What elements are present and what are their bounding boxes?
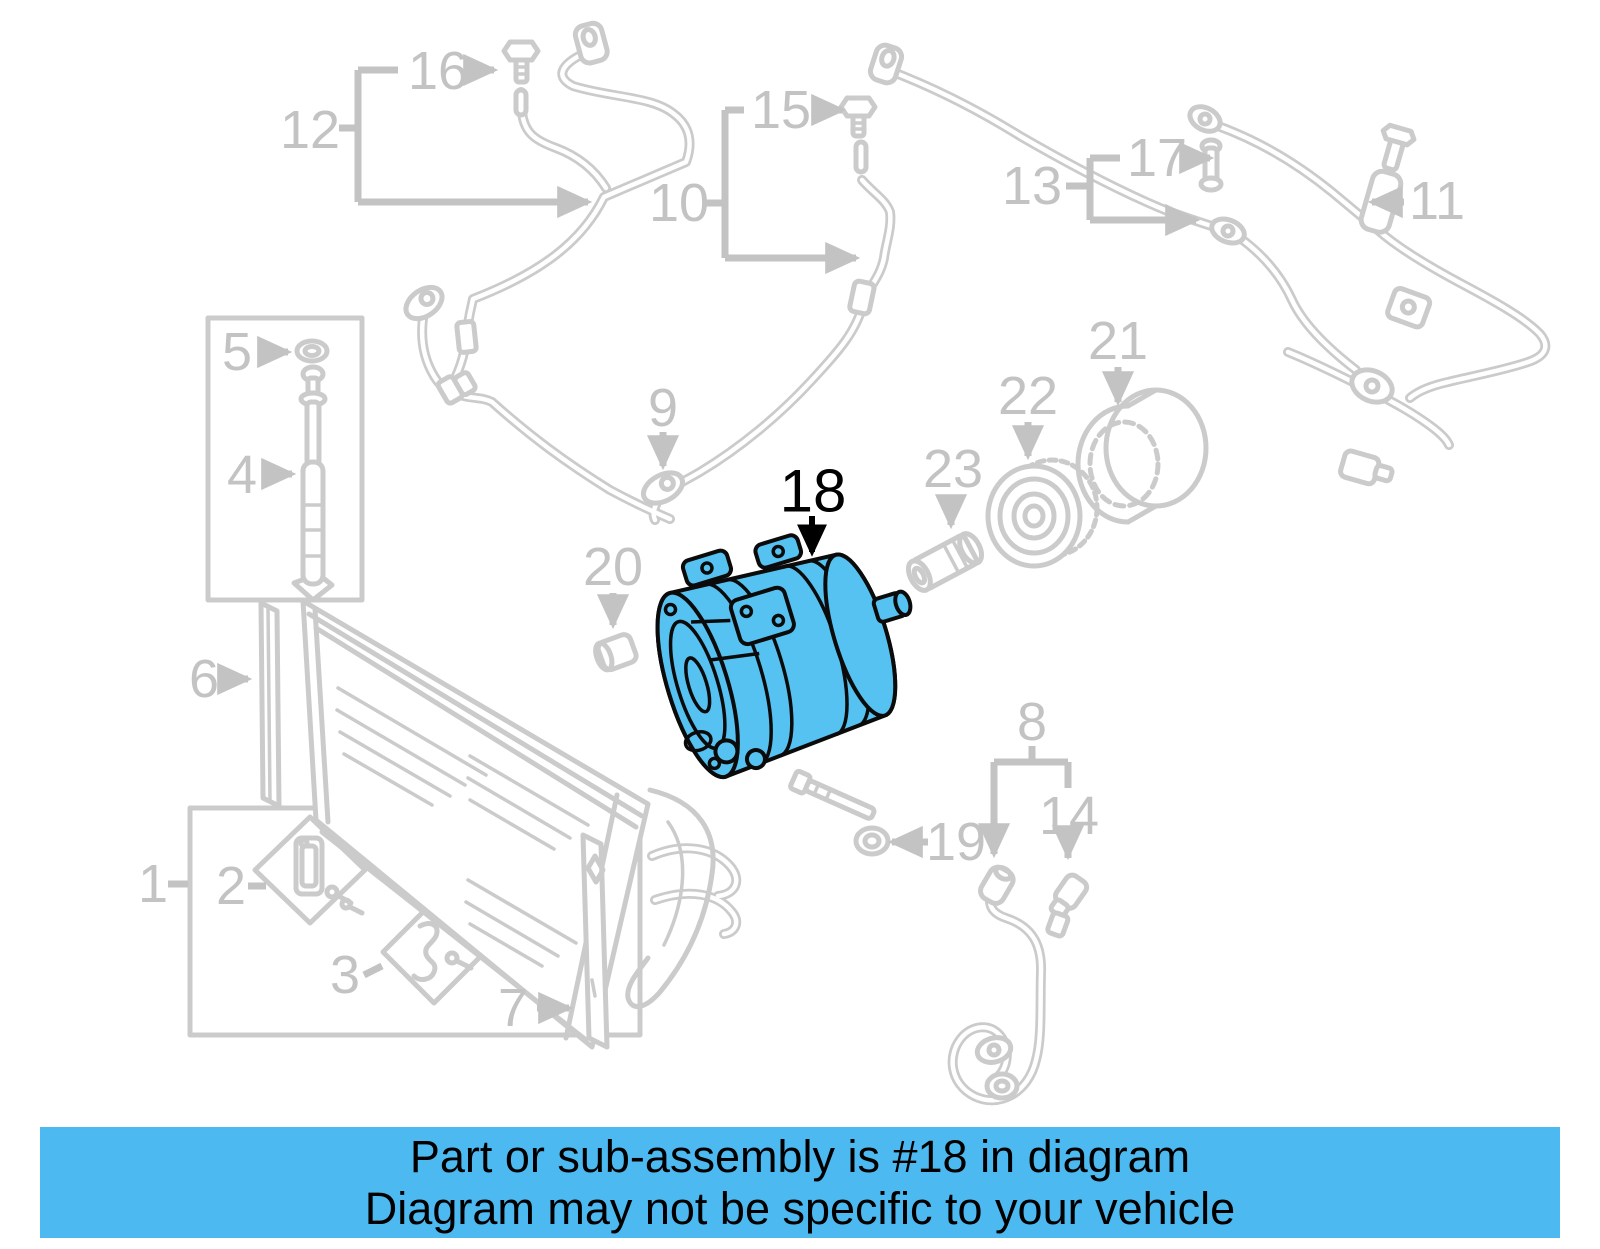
compressor-part-18 — [633, 502, 943, 787]
callout-11: 11 — [1409, 171, 1465, 231]
callout-9: 9 — [648, 378, 678, 438]
callout-22: 22 — [998, 366, 1058, 426]
callout-6: 6 — [189, 649, 219, 709]
parts-diagram-page: 1 2 3 4 5 6 7 8 9 10 11 12 13 14 15 16 1… — [0, 0, 1600, 1249]
callout-14: 14 — [1039, 786, 1099, 846]
banner-line-1: Part or sub-assembly is #18 in diagram — [410, 1131, 1190, 1183]
callout-1: 1 — [138, 854, 168, 914]
callout-7: 7 — [498, 978, 528, 1038]
banner-line-2: Diagram may not be specific to your vehi… — [365, 1183, 1235, 1235]
side-seal-6 — [261, 603, 279, 806]
callout-15: 15 — [751, 80, 811, 140]
parts-diagram: 1 2 3 4 5 6 7 8 9 10 11 12 13 14 15 16 1… — [0, 0, 1600, 1249]
callout-18: 18 — [780, 458, 847, 525]
callout-13: 13 — [1002, 156, 1062, 216]
callout-5: 5 — [222, 322, 252, 382]
side-seal-7 — [583, 835, 607, 1047]
fitting-9 — [638, 467, 687, 510]
callout-8: 8 — [1017, 692, 1047, 752]
condenser — [261, 574, 713, 1047]
info-banner: Part or sub-assembly is #18 in diagram D… — [40, 1127, 1560, 1238]
valve-17 — [1201, 140, 1221, 190]
callout-4: 4 — [227, 445, 257, 505]
callout-16: 16 — [408, 41, 468, 101]
callout-17: 17 — [1127, 128, 1187, 188]
callout-3: 3 — [330, 945, 360, 1005]
sleeve-20 — [592, 633, 638, 673]
bolt-19 — [790, 770, 888, 854]
callout-20: 20 — [583, 537, 643, 597]
callout-2: 2 — [216, 856, 246, 916]
callout-10: 10 — [649, 173, 709, 233]
callout-21: 21 — [1088, 311, 1148, 371]
callout-19: 19 — [926, 812, 986, 872]
spacer-23 — [904, 530, 986, 594]
bolt-15 — [841, 98, 875, 172]
callout-12: 12 — [280, 100, 340, 160]
bolt-16 — [504, 42, 538, 115]
receiver-drier-4 — [297, 341, 327, 584]
callout-23: 23 — [923, 439, 983, 499]
